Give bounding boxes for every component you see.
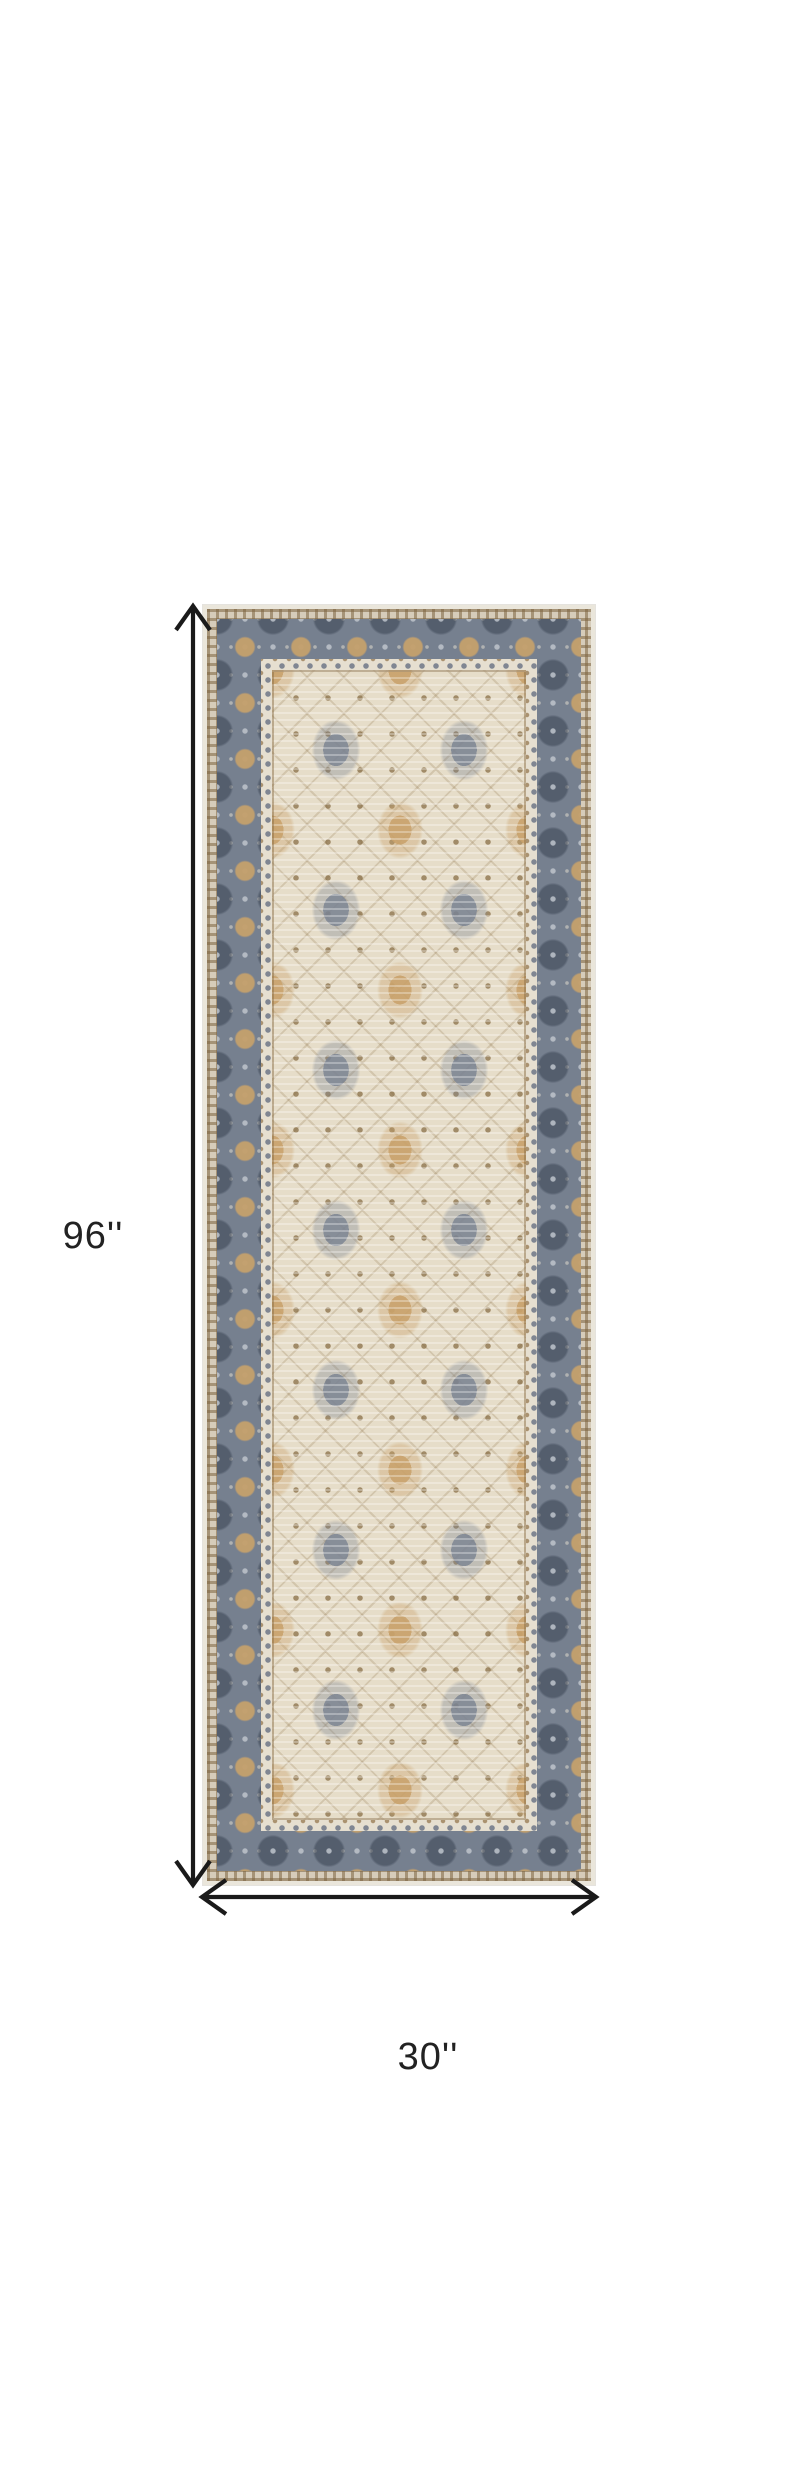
rug-main-border [217, 619, 581, 1871]
figure-canvas: 96'' 30'' [0, 0, 800, 2492]
rug-field [272, 670, 526, 1820]
width-dimension-label: 30'' [368, 2038, 488, 2076]
width-dimension-arrow [202, 1880, 596, 1914]
height-dimension-label: 96'' [38, 1217, 148, 1255]
rug-guard-band [261, 659, 537, 1831]
rug-outer-band [207, 609, 591, 1881]
rug-image [203, 605, 595, 1885]
